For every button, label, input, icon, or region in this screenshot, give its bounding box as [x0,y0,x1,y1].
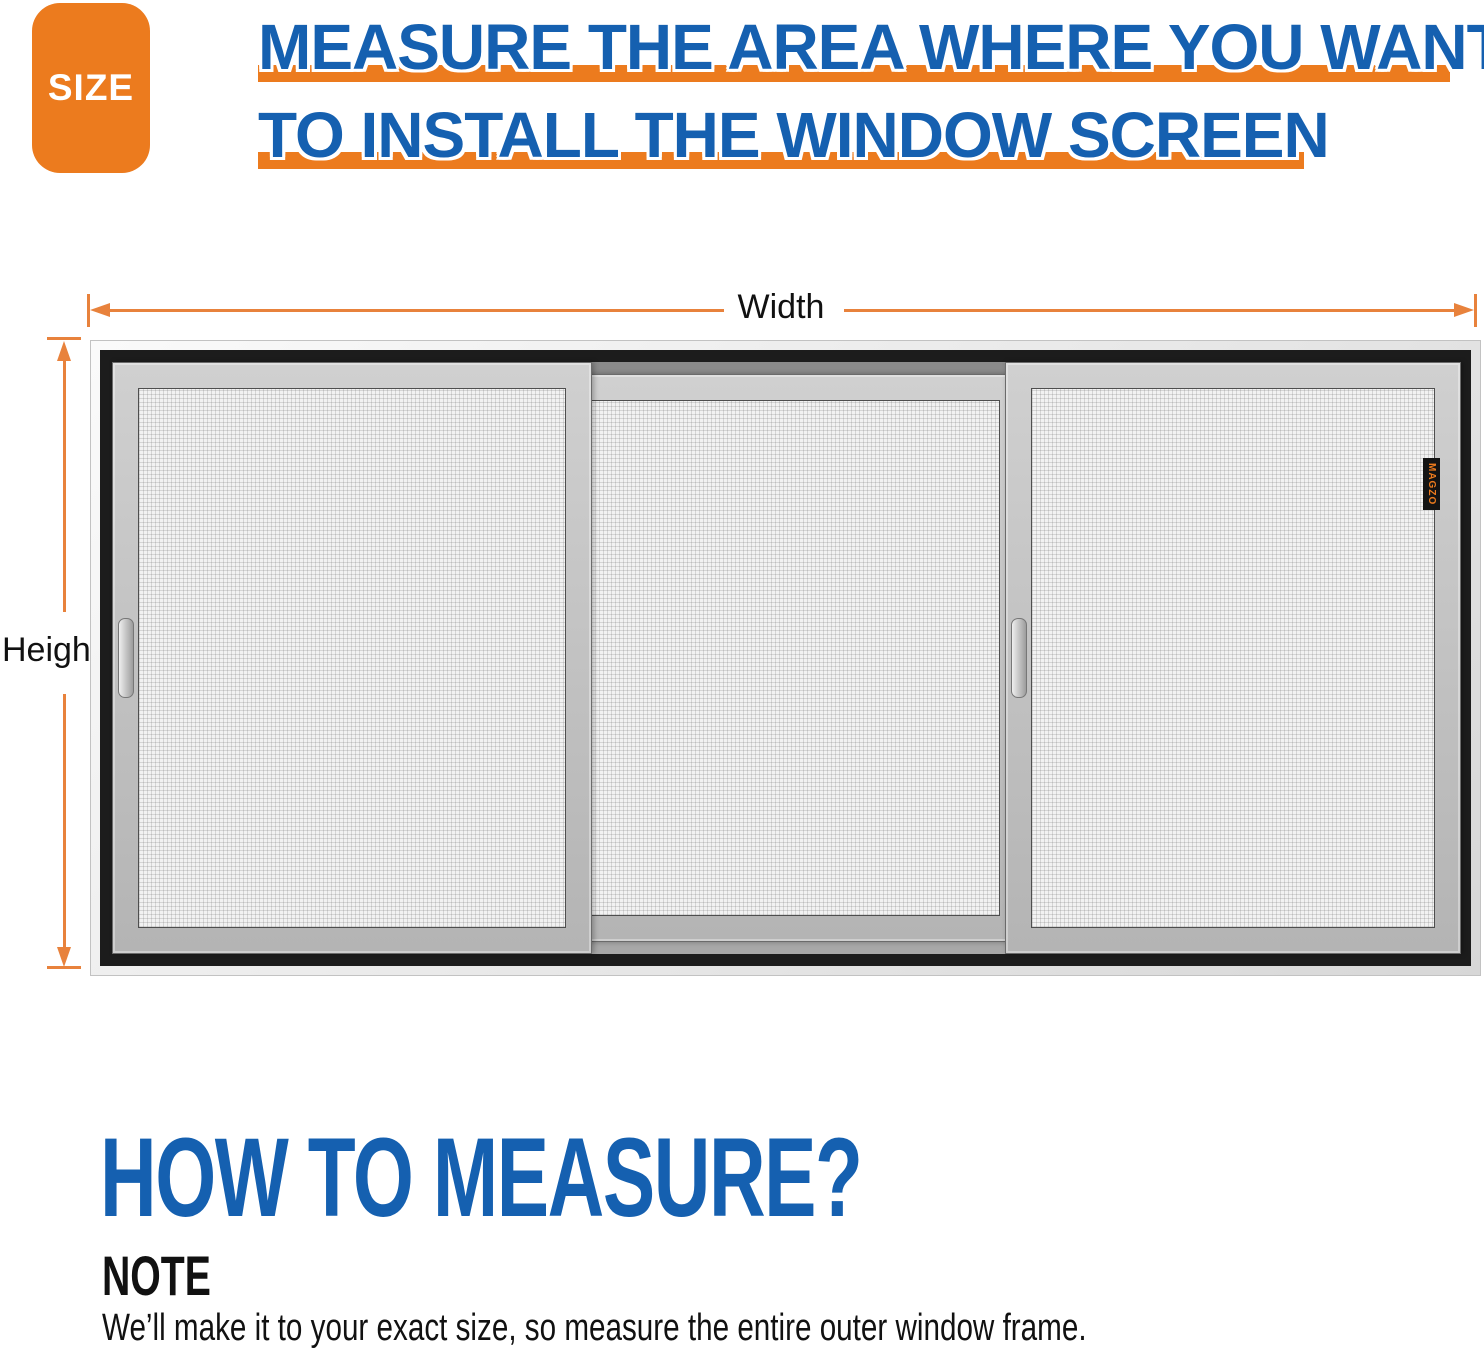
height-arrow-tick-top [47,337,81,340]
window-diagram: MAGZO [90,340,1481,976]
height-label: Height [2,631,92,670]
title-line-1: MEASURE THE AREA WHERE YOU WANT [258,17,1484,77]
panel-handle-right [1011,618,1027,698]
brand-tag: MAGZO [1423,458,1440,510]
infographic-canvas: SIZE MEASURE THE AREA WHERE YOU WANT TO … [0,0,1484,1356]
brand-tag-label: MAGZO [1426,463,1437,505]
height-arrow-line-bottom [63,694,66,949]
window-track: MAGZO [112,362,1459,954]
note-text: We’ll make it to your exact size, so mea… [102,1305,1087,1351]
width-label: Width [726,288,836,327]
width-arrow-tick-right [1474,294,1477,327]
screen-panel-right [1005,362,1461,954]
width-arrow-line-right [844,309,1456,312]
width-arrow-line-left [108,309,724,312]
height-arrow-head-bottom [57,947,71,967]
title-line-2: TO INSTALL THE WINDOW SCREEN [258,105,1329,165]
screen-panel-middle [564,374,1026,942]
width-arrow-head-left [90,303,110,317]
width-arrow-head-right [1454,303,1474,317]
size-badge-label: SIZE [48,67,134,109]
note-label: NOTE [102,1248,211,1304]
screen-panel-left [112,362,592,954]
mesh-screen-left [138,388,566,928]
how-to-measure-title: HOW TO MEASURE? [100,1122,862,1234]
height-arrow-tick-bottom [47,966,81,969]
height-arrow-head-top [57,341,71,361]
size-badge: SIZE [32,3,150,173]
mesh-screen-middle [590,400,1000,916]
height-arrow-line-top [63,359,66,612]
mesh-screen-right [1031,388,1435,928]
panel-handle-left [118,618,134,698]
